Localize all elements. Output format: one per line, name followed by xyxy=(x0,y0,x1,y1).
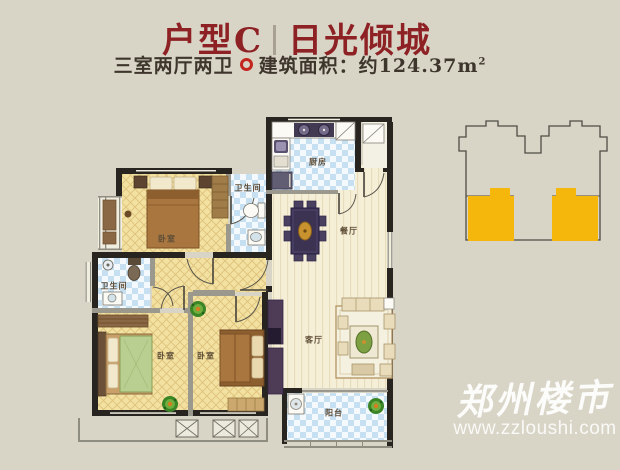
room-label-bedroom-left: 卧室 xyxy=(157,351,175,362)
room-label-balcony: 阳台 xyxy=(325,408,343,419)
divider-dot-icon xyxy=(240,58,253,71)
balcony-fixtures xyxy=(288,394,304,414)
area-superscript: 2 xyxy=(478,57,486,68)
page-subtitle: 三室两厅两卫建筑面积：约124.37m2 xyxy=(0,51,600,78)
room-label-dining: 餐厅 xyxy=(340,226,358,237)
area-label: 建筑面积：约124.37m xyxy=(259,55,479,77)
floorplan-page: 户型C日光倾城 三室两厅两卫建筑面积：约124.37m2 厨房 卫生间 餐厅 卧… xyxy=(0,0,620,470)
room-label-bedroom-mid: 卧室 xyxy=(197,351,215,362)
layout-spec: 三室两厅两卫 xyxy=(114,55,234,77)
watermark-url: www.zzloushi.com xyxy=(447,418,620,440)
room-label-bath-left: 卫生间 xyxy=(101,281,128,292)
room-label-bath-top: 卫生间 xyxy=(235,183,262,194)
room-label-bedroom-top: 卧室 xyxy=(158,234,176,245)
room-label-living: 客厅 xyxy=(305,335,323,346)
building-locator-diagram xyxy=(459,121,607,241)
room-label-kitchen: 厨房 xyxy=(309,157,327,168)
